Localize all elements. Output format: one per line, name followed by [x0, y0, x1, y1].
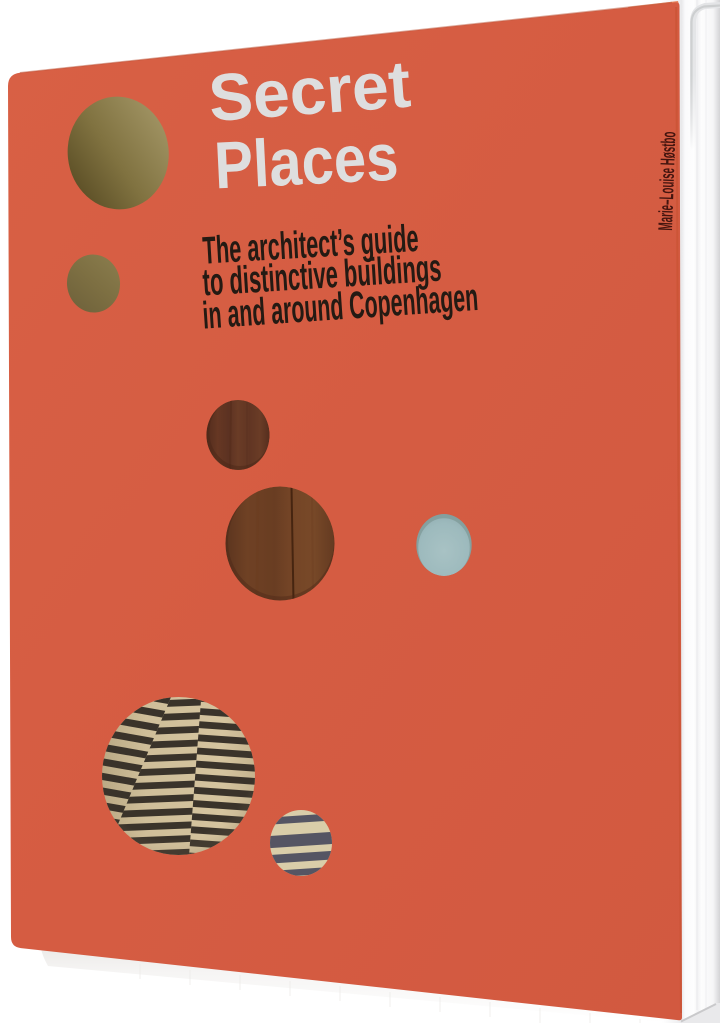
svg-text:Marie–Louise Høstbo: Marie–Louise Høstbo — [655, 131, 680, 231]
svg-text:Places: Places — [213, 121, 400, 204]
